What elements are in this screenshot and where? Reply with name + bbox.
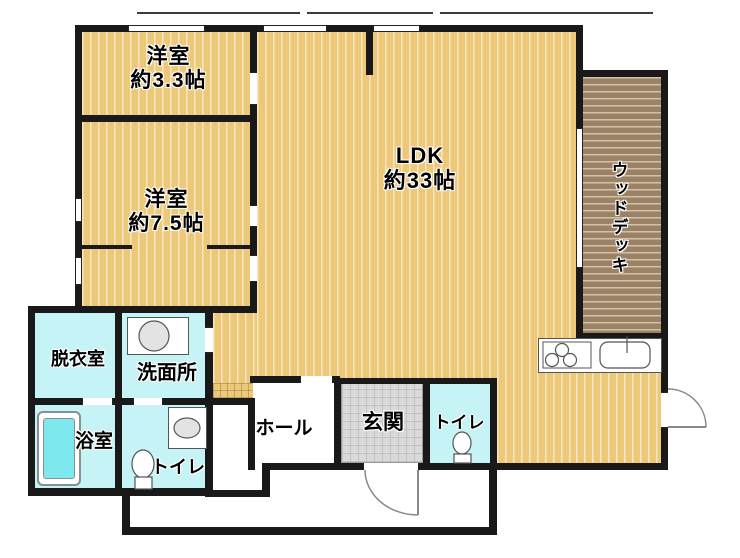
toilet-icon: [450, 431, 476, 465]
room-label-bathroom: 浴室: [70, 431, 118, 453]
door-opening-bedroom-large-2: [250, 255, 257, 282]
wall-ldk-entrance-top: [340, 378, 497, 384]
window-icon: [75, 257, 82, 285]
door-swing-icon: [664, 388, 710, 432]
room-size: 約3.3帖: [130, 69, 206, 92]
wall-toilet-east-right: [490, 378, 497, 470]
wall-porch-bottom: [122, 527, 497, 535]
wall-toilet-east-left: [423, 378, 430, 470]
room-label-bedroom-small: 洋室 約3.3帖: [96, 45, 241, 93]
room-label-bedroom-large: 洋室 約7.5帖: [94, 188, 239, 236]
toilet-cabinet: [168, 407, 207, 449]
room-label-toilet-east: トイレ: [432, 413, 486, 433]
wall-deck-top: [583, 70, 668, 77]
window-icon: [128, 25, 205, 32]
room-label-dressing-room: 脱衣室: [42, 349, 114, 370]
room-label-wood-deck: ウッドデッキ: [608, 138, 628, 298]
door-opening-bathroom: [82, 398, 113, 405]
door-opening-bedroom-large-1: [250, 205, 257, 227]
room-label-ldk: LDK 約33帖: [355, 143, 485, 194]
room-name: 洋室: [147, 45, 191, 68]
door-opening-washroom: [205, 327, 213, 353]
washbasin-icon: [127, 317, 189, 355]
floorplan: 洋室 約3.3帖 洋室 約7.5帖 LDK 約33帖 ウッドデッキ 脱衣室 洗面…: [0, 0, 740, 558]
door-swing-icon: [360, 465, 425, 520]
room-label-entrance: 玄関: [359, 411, 407, 435]
floor-corridor: [213, 313, 257, 383]
wall-porch-right: [489, 470, 497, 535]
room-label-washroom: 洗面所: [128, 362, 206, 385]
floor-porch: [130, 496, 489, 527]
door-opening-ldk-hall: [300, 376, 333, 383]
window-icon: [576, 128, 583, 268]
eave-line: [137, 12, 300, 14]
room-size: 約7.5帖: [128, 212, 204, 235]
wall-deck-right: [661, 70, 668, 340]
room-label-hall: ホール: [252, 418, 316, 440]
room-name: LDK: [396, 143, 444, 168]
eave-line: [307, 12, 433, 14]
wall-closet-bottom: [205, 490, 270, 497]
floor-corridor-step: [213, 383, 253, 398]
wall-sanitary-top: [28, 306, 257, 313]
wall-bedroom-large-partition-right: [207, 245, 257, 249]
wall-hall-entrance: [334, 383, 341, 470]
wall-ldk-bottom: [490, 463, 668, 470]
room-size: 約33帖: [384, 168, 456, 193]
stove-icon: [543, 342, 591, 368]
window-icon: [373, 25, 420, 32]
door-opening-bedroom-small: [250, 72, 257, 105]
kitchen-counter: [538, 336, 663, 374]
eave-line: [440, 12, 653, 14]
window-icon: [75, 198, 82, 222]
wall-bedroom-large-partition-left: [82, 245, 132, 249]
wall-ldk-top-stub: [366, 32, 373, 75]
wall-hall-bottom: [262, 463, 340, 470]
floor-ldk-main: [257, 32, 576, 378]
floor-ldk-southeast: [497, 376, 576, 463]
door-opening-toilet-west: [133, 398, 163, 405]
wall-bedroom-divider: [75, 115, 257, 122]
room-name: 洋室: [145, 188, 189, 211]
window-icon: [263, 25, 327, 32]
room-label-toilet-west: トイレ: [150, 457, 206, 478]
